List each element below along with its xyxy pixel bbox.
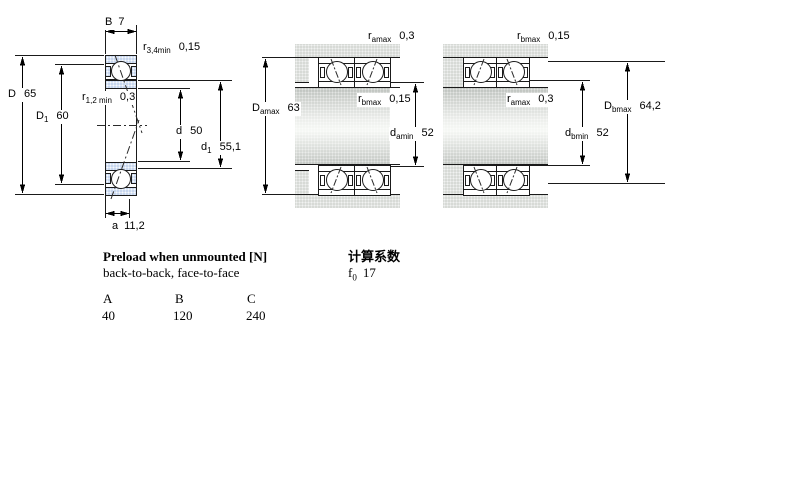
dim-label-B: B7 [104, 16, 125, 30]
housing-strip [443, 44, 548, 57]
cage-segment [320, 175, 325, 186]
preload-col-B: B [175, 291, 184, 306]
cage-segment [356, 175, 361, 186]
dim-label-rbmax-mid: rbmax0,15 [357, 93, 412, 107]
dim-label-r34min: r3,4min0,15 [142, 41, 201, 55]
dim-label-a: a11,2 [111, 220, 146, 234]
dim-label-ramax-mid: ramax0,3 [506, 93, 555, 107]
housing-strip [295, 195, 400, 208]
shaft-shoulder [295, 57, 309, 83]
calculation-title: 计算系数 [348, 249, 400, 264]
bearing-ball [503, 169, 525, 191]
bearing-technical-drawing: B7 r3,4min0,15 D65 D160 r1,2 min0,3 d50 … [0, 0, 800, 500]
dim-label-D: D65 [7, 88, 37, 102]
dim-label-rbmax-top: rbmax0,15 [516, 30, 571, 44]
dim-label-d: d50 [175, 125, 203, 139]
shaft-shoulder [443, 165, 463, 195]
bearing-ball [362, 61, 384, 83]
bearing-ball [326, 61, 348, 83]
bearing-cross-section [318, 165, 355, 196]
bearing-ball [470, 169, 492, 191]
bearing-ball [362, 169, 384, 191]
dim-label-d1: d155,1 [200, 141, 242, 155]
shaft-shoulder [443, 57, 463, 87]
preload-subtitle: back-to-back, face-to-face [103, 265, 239, 280]
preload-value-A: 40 [102, 308, 115, 323]
calculation-factor: f017 [348, 265, 376, 286]
preload-col-C: C [247, 291, 256, 306]
bearing-cross-section [463, 57, 497, 88]
cage-segment [348, 175, 353, 186]
bearing-cross-section [354, 57, 391, 88]
cage-segment [384, 67, 389, 78]
dim-label-Dbmax: Dbmax64,2 [603, 100, 662, 114]
bearing-ball [503, 61, 525, 83]
bearing-cross-section [496, 57, 530, 88]
preload-value-C: 240 [246, 308, 266, 323]
dim-label-r12min: r1,2 min0,3 [81, 91, 136, 105]
preload-title: Preload when unmounted [N] [103, 249, 267, 264]
dim-label-D1: D160 [35, 110, 70, 124]
bearing-cross-section [463, 165, 497, 196]
shaft-shoulder [295, 170, 309, 196]
bearing-cross-section [496, 165, 530, 196]
bearing-ball [470, 61, 492, 83]
cage-segment [356, 67, 361, 78]
dim-label-Damax: Damax63 [251, 102, 301, 116]
bearing-ball [326, 169, 348, 191]
housing-strip [295, 44, 400, 57]
cage-segment [320, 67, 325, 78]
preload-col-A: A [103, 291, 112, 306]
dim-label-damin: damin52 [389, 127, 435, 141]
housing-strip [443, 195, 548, 208]
bearing-cross-section [318, 57, 355, 88]
bearing-ball [111, 61, 131, 81]
bearing-cross-section [354, 165, 391, 196]
dim-label-dbmin: dbmin52 [564, 127, 610, 141]
preload-value-B: 120 [173, 308, 193, 323]
cage-segment [348, 67, 353, 78]
bearing-ball [111, 169, 131, 189]
cage-segment [384, 175, 389, 186]
dim-label-ramax-top: ramax0,3 [367, 30, 416, 44]
